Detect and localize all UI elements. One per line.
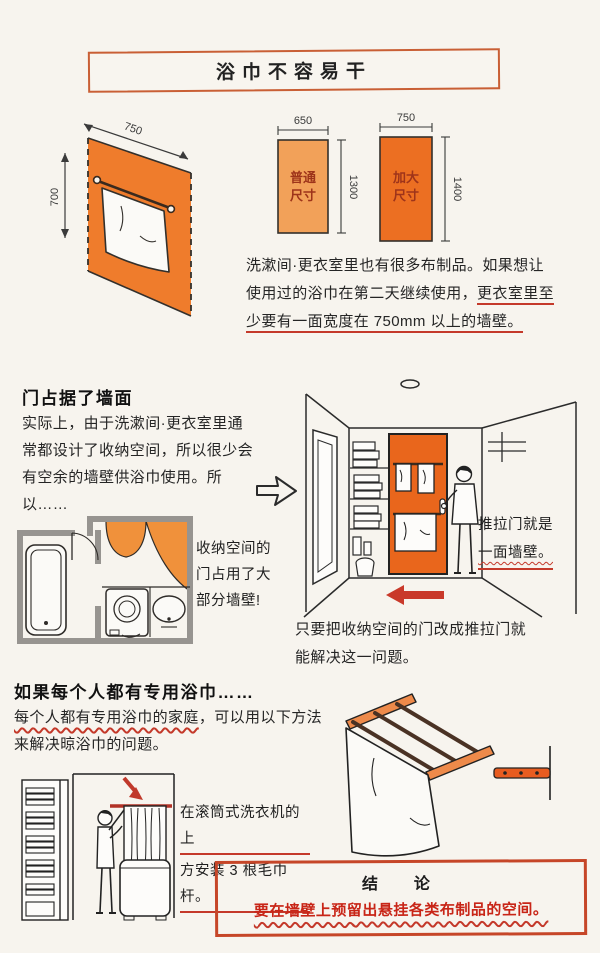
hanging-towel-large xyxy=(395,514,436,551)
conclusion-heading: 结 论 xyxy=(218,869,584,895)
towel-rack-illustration xyxy=(322,676,590,858)
plan-caption-line: 门占用了大 xyxy=(196,562,306,588)
conclusion-text: 要在墙壁上预留出悬挂各类布制品的空间。 xyxy=(254,898,549,921)
towel-size-diagram: 650 1300 普通 尺寸 750 1400 加大 尺寸 xyxy=(248,110,476,252)
door-body-line: 实际上，由于洗漱间·更衣室里通 xyxy=(22,410,253,437)
personal-line-1-marked: 每个人都有专用浴巾的家庭 xyxy=(14,709,199,726)
intro-line-2-marked: 更衣室里至 xyxy=(477,285,554,305)
dim-large-width: 750 xyxy=(397,112,415,124)
normal-towel-label-1: 普通 xyxy=(290,170,316,185)
intro-line-3-marked: 少要有一面宽度在 750mm 以上的墙壁。 xyxy=(246,313,523,333)
page-title-box: 浴巾不容易干 xyxy=(88,48,500,93)
intro-line-3: 少要有一面宽度在 750mm 以上的墙壁。 xyxy=(246,308,586,336)
door-body-line: 有空余的墙壁供浴巾使用。所 xyxy=(22,464,253,491)
dim-normal-width: 650 xyxy=(294,115,312,127)
book-page: 浴巾不容易干 750 700 xyxy=(0,0,600,953)
dim-wall-width: 750 xyxy=(122,121,143,138)
red-arrow-down-icon xyxy=(124,778,143,800)
section-personal-body: 每个人都有专用浴巾的家庭，可以用以下方法 来解决晾浴巾的问题。 xyxy=(14,704,359,758)
bathtub xyxy=(26,545,66,635)
section-door-result: 只要把收纳空间的门改成推拉门就 能解决这一问题。 xyxy=(295,616,595,672)
normal-towel-label-2: 尺寸 xyxy=(290,188,316,203)
sliding-door-annotation: 推拉门就是 一面墙壁。 xyxy=(478,512,588,570)
large-towel-label-2: 尺寸 xyxy=(393,188,419,203)
section-door-body: 实际上，由于洗漱间·更衣室里通 常都设计了收纳空间，所以很少会 有空余的墙壁供浴… xyxy=(22,410,253,518)
wall-rails xyxy=(488,432,526,462)
ceiling-lamp-icon xyxy=(401,380,419,388)
wall-height-dimension: 700 xyxy=(49,153,69,238)
towel-shelf xyxy=(22,780,68,920)
page-title: 浴巾不容易干 xyxy=(216,56,372,84)
intro-paragraph: 洗漱间·更衣室里也有很多布制品。如果想让 使用过的浴巾在第二天继续使用，更衣室里… xyxy=(246,252,586,336)
plan-door-arc xyxy=(72,533,98,560)
floorplan-diagram xyxy=(10,503,196,649)
sliding-door xyxy=(389,434,447,574)
large-towel-label-1: 加大 xyxy=(392,170,419,185)
large-towel-swatch: 750 1400 加大 尺寸 xyxy=(380,112,463,241)
wall-towel-diagram: 750 700 xyxy=(36,104,248,336)
dim-normal-height: 1300 xyxy=(347,175,359,199)
intro-line-1: 洗漱间·更衣室里也有很多布制品。如果想让 xyxy=(246,252,586,280)
personal-line-2: 来解决晾浴巾的问题。 xyxy=(14,731,359,758)
washing-machine-front xyxy=(120,860,170,920)
rack-side-view xyxy=(494,746,550,800)
floorplan-caption: 收纳空间的 门占用了大 部分墙壁! xyxy=(196,536,306,614)
door-swing-area xyxy=(106,521,190,591)
room-illustration xyxy=(292,372,590,622)
intro-line-2: 使用过的浴巾在第二天继续使用，更衣室里至 xyxy=(246,280,586,308)
washer-caption-line-1: 在滚筒式洗衣机的上 xyxy=(180,800,310,855)
intro-line-2-plain: 使用过的浴巾在第二天继续使用， xyxy=(246,285,477,302)
plan-caption-line: 收纳空间的 xyxy=(196,536,306,562)
closet-shelves xyxy=(350,442,388,576)
washer-illustration xyxy=(12,766,182,930)
door-body-line: 常都设计了收纳空间，所以很少会 xyxy=(22,437,253,464)
plan-sink xyxy=(153,596,185,627)
dim-wall-height: 700 xyxy=(49,188,61,206)
dim-large-height: 1400 xyxy=(451,177,463,201)
normal-towel-swatch: 650 1300 普通 尺寸 xyxy=(278,115,359,233)
red-arrow-left-icon xyxy=(386,585,444,605)
plan-caption-line: 部分墙壁! xyxy=(196,588,306,614)
annotation-line-1: 推拉门就是 xyxy=(478,512,588,538)
section-door-heading: 门占据了墙面 xyxy=(22,384,133,409)
annotation-line-2: 一面墙壁。 xyxy=(478,540,553,570)
result-line: 能解决这一问题。 xyxy=(295,644,595,672)
conclusion-box: 结 论 要在墙壁上预留出悬挂各类布制品的空间。 xyxy=(215,859,587,937)
open-door xyxy=(313,430,337,584)
personal-line-1: 每个人都有专用浴巾的家庭，可以用以下方法 xyxy=(14,704,359,731)
plan-washing-machine xyxy=(106,589,148,637)
result-line: 只要把收纳空间的门改成推拉门就 xyxy=(295,616,595,644)
personal-line-1-plain: ，可以用以下方法 xyxy=(199,709,322,726)
section-personal-heading: 如果每个人都有专用浴巾…… xyxy=(14,678,255,703)
